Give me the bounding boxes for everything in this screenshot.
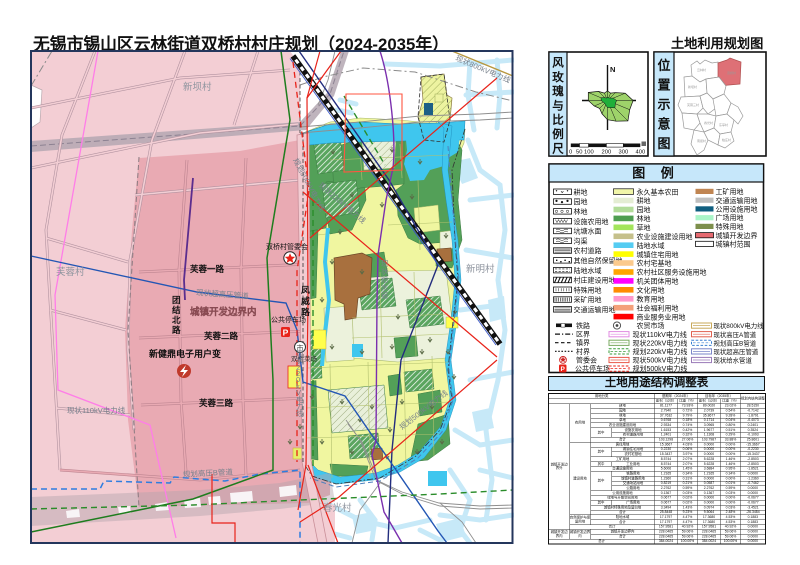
- svg-text:铁路: 铁路: [576, 321, 590, 330]
- svg-text:村界: 村界: [576, 347, 590, 356]
- svg-text:300: 300: [619, 150, 629, 156]
- svg-text:区界: 区界: [576, 331, 590, 339]
- svg-text:公共停车场: 公共停车场: [575, 364, 610, 373]
- svg-text:城镇住宅用地: 城镇住宅用地: [637, 250, 679, 259]
- svg-text:陆地水域: 陆地水域: [637, 241, 665, 250]
- svg-text:现状110kV电力线: 现状110kV电力线: [633, 330, 687, 339]
- svg-text:双桥菜场: 双桥菜场: [291, 354, 318, 363]
- svg-text:现状110kV电力线: 现状110kV电力线: [67, 405, 126, 415]
- svg-text:0: 0: [569, 150, 572, 156]
- svg-text:风: 风: [552, 56, 564, 70]
- svg-text:200: 200: [602, 150, 612, 156]
- svg-text:柏庄村: 柏庄村: [722, 137, 731, 142]
- svg-text:东亭村: 东亭村: [719, 122, 728, 127]
- svg-text:路: 路: [301, 306, 310, 317]
- svg-text:管: 管: [381, 290, 389, 300]
- svg-text:团: 团: [172, 295, 181, 305]
- svg-text:采矿用地: 采矿用地: [574, 295, 602, 304]
- svg-text:春光村: 春光村: [323, 502, 352, 514]
- svg-text:农贸市场: 农贸市场: [637, 321, 665, 330]
- svg-text:芙蓉三村: 芙蓉三村: [687, 102, 699, 107]
- svg-text:N: N: [610, 65, 615, 74]
- svg-text:尺: 尺: [552, 142, 564, 155]
- svg-text:新坝村: 新坝村: [183, 81, 212, 93]
- svg-text:耕地: 耕地: [574, 187, 588, 196]
- svg-text:城镇开发边界: 城镇开发边界: [716, 231, 758, 240]
- svg-text:教育用地: 教育用地: [637, 295, 665, 304]
- svg-text:耕地: 耕地: [637, 196, 651, 205]
- svg-text:图: 图: [657, 136, 670, 151]
- svg-text:春光村: 春光村: [704, 120, 713, 125]
- svg-text:示: 示: [657, 97, 670, 112]
- svg-text:商业服务业用地: 商业服务业用地: [637, 312, 686, 321]
- svg-text:玫: 玫: [552, 70, 564, 84]
- svg-text:芙蓉村: 芙蓉村: [56, 266, 85, 278]
- svg-text:公共停车场: 公共停车场: [271, 315, 306, 324]
- svg-text:园地: 园地: [637, 205, 651, 214]
- svg-text:现状超高压管道: 现状超高压管道: [714, 347, 759, 356]
- svg-text:P: P: [283, 328, 289, 338]
- svg-text:特殊用地: 特殊用地: [574, 285, 602, 294]
- svg-text:威: 威: [301, 295, 310, 306]
- svg-text:南街村: 南街村: [697, 138, 706, 143]
- svg-text:新明村: 新明村: [466, 263, 495, 275]
- svg-text:芙蓉三路: 芙蓉三路: [198, 398, 234, 408]
- svg-text:林地: 林地: [637, 214, 651, 223]
- svg-text:永久基本农田: 永久基本农田: [637, 187, 679, 196]
- svg-text:农村宅基地: 农村宅基地: [637, 259, 672, 268]
- svg-text:结: 结: [172, 305, 181, 315]
- svg-text:文化用地: 文化用地: [637, 286, 665, 295]
- svg-text:100: 100: [584, 150, 594, 156]
- svg-text:农业设施建设用地: 农业设施建设用地: [637, 232, 693, 241]
- svg-text:现状给水管道: 现状给水管道: [714, 356, 753, 365]
- svg-text:北: 北: [172, 315, 181, 325]
- svg-text:交通运输用地: 交通运输用地: [574, 305, 616, 314]
- svg-text:社会福利用地: 社会福利用地: [637, 303, 679, 312]
- svg-text:规划500kV电力线: 规划500kV电力线: [633, 364, 688, 373]
- svg-text:云林村: 云林村: [697, 67, 706, 72]
- svg-text:现状高压A管道: 现状高压A管道: [714, 330, 757, 339]
- svg-text:公用设施用地: 公用设施用地: [716, 205, 758, 214]
- svg-text:新健鼎电子用户变: 新健鼎电子用户变: [149, 348, 221, 359]
- svg-text:规划220kV电力线: 规划220kV电力线: [633, 347, 688, 356]
- svg-text:双桥村管委会: 双桥村管委会: [266, 242, 308, 251]
- svg-text:林地: 林地: [574, 207, 588, 216]
- svg-text:设施农用地: 设施农用地: [574, 217, 609, 226]
- svg-text:现状800kV电力线: 现状800kV电力线: [714, 321, 765, 330]
- svg-text:比: 比: [552, 113, 564, 127]
- svg-text:50: 50: [576, 150, 582, 156]
- svg-text:交通运输用地: 交通运输用地: [716, 196, 758, 205]
- svg-text:管委会: 管委会: [576, 355, 597, 364]
- svg-text:位: 位: [657, 58, 670, 73]
- svg-text:芙蓉二路: 芙蓉二路: [203, 331, 239, 341]
- svg-text:图 例: 图 例: [632, 166, 680, 181]
- svg-text:规划高压B管道: 规划高压B管道: [714, 338, 757, 347]
- svg-text:凤: 凤: [301, 285, 310, 295]
- svg-text:现状220kV电力线: 现状220kV电力线: [633, 338, 688, 347]
- svg-text:机关团体用地: 机关团体用地: [637, 277, 679, 286]
- svg-text:工矿用地: 工矿用地: [716, 187, 744, 196]
- svg-text:线: 线: [296, 408, 304, 418]
- svg-text:特殊用地: 特殊用地: [716, 222, 744, 231]
- svg-text:路: 路: [172, 325, 181, 335]
- svg-text:村庄建设用地: 村庄建设用地: [574, 276, 616, 285]
- svg-text:双桥村: 双桥村: [727, 70, 736, 75]
- svg-text:广场用地: 广场用地: [716, 213, 744, 222]
- svg-text:陆地水域: 陆地水域: [574, 266, 602, 275]
- svg-text:例: 例: [552, 127, 564, 141]
- svg-text:现状500kV电力线: 现状500kV电力线: [633, 356, 688, 365]
- svg-text:P: P: [561, 366, 566, 373]
- svg-text:与: 与: [552, 99, 564, 112]
- svg-text:芙蓉一路: 芙蓉一路: [189, 264, 225, 274]
- svg-text:农村道路: 农村道路: [574, 246, 602, 255]
- svg-text:草地: 草地: [637, 223, 651, 232]
- svg-text:瑰: 瑰: [552, 84, 564, 98]
- svg-text:400: 400: [636, 150, 646, 156]
- svg-text:园地: 园地: [574, 197, 588, 206]
- svg-text:城镇村范围: 城镇村范围: [716, 240, 751, 249]
- svg-text:沟渠: 沟渠: [574, 236, 588, 245]
- svg-text:农村社区服务设施用地: 农村社区服务设施用地: [637, 268, 707, 277]
- svg-text:城镇开发边界内: 城镇开发边界内: [190, 306, 257, 318]
- svg-text:坑塘水面: 坑塘水面: [574, 227, 602, 236]
- svg-text:镇界: 镇界: [576, 338, 590, 347]
- svg-text:意: 意: [657, 117, 670, 132]
- svg-text:新坝村: 新坝村: [688, 84, 697, 89]
- svg-text:置: 置: [657, 78, 670, 93]
